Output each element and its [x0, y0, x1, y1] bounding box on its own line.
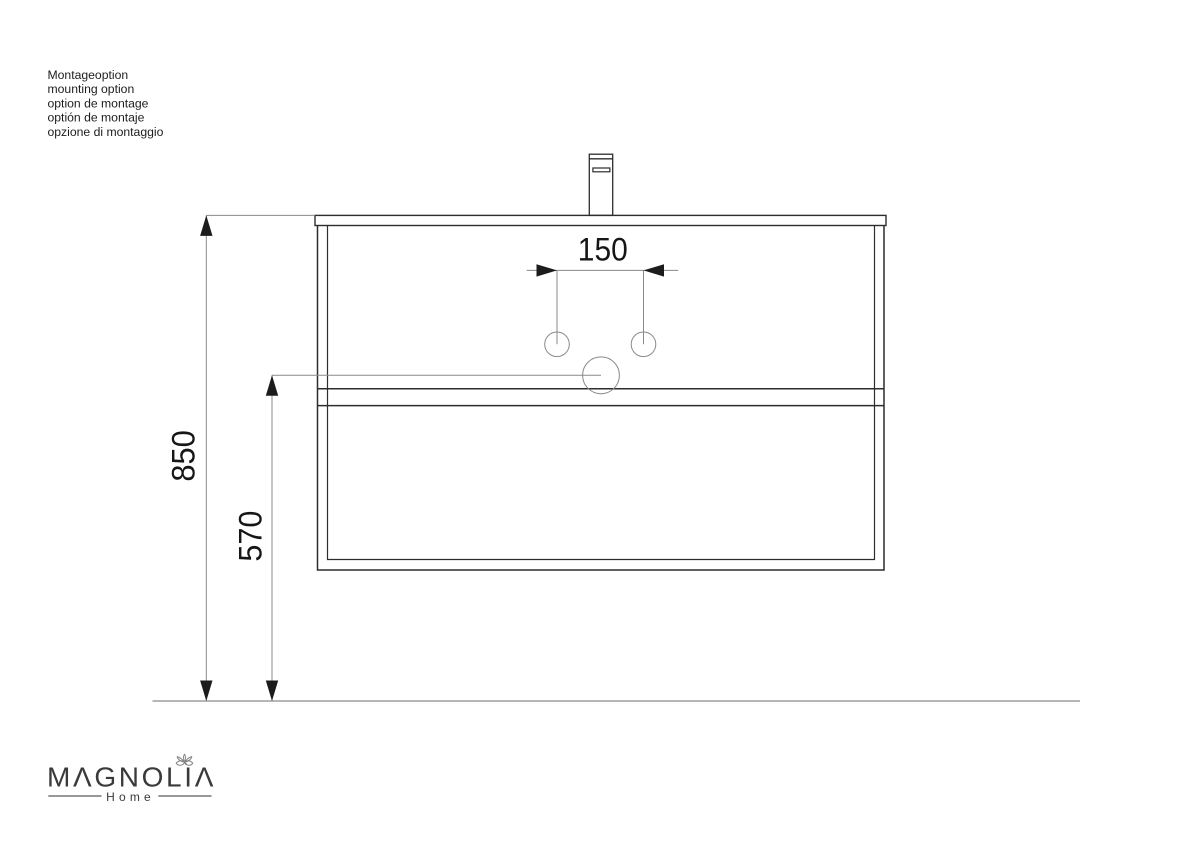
svg-text:Home: Home: [106, 790, 155, 804]
svg-text:570: 570: [233, 511, 269, 562]
svg-text:MΛGNOLIΛ: MΛGNOLIΛ: [47, 762, 216, 793]
svg-text:opzione di montaggio: opzione di montaggio: [48, 125, 164, 139]
svg-text:optión de montaje: optión de montaje: [48, 111, 145, 125]
svg-text:option de montage: option de montage: [48, 96, 149, 110]
svg-text:150: 150: [578, 232, 628, 268]
svg-text:Montageoption: Montageoption: [48, 68, 129, 82]
svg-text:850: 850: [166, 430, 202, 482]
svg-text:mounting option: mounting option: [48, 82, 135, 96]
